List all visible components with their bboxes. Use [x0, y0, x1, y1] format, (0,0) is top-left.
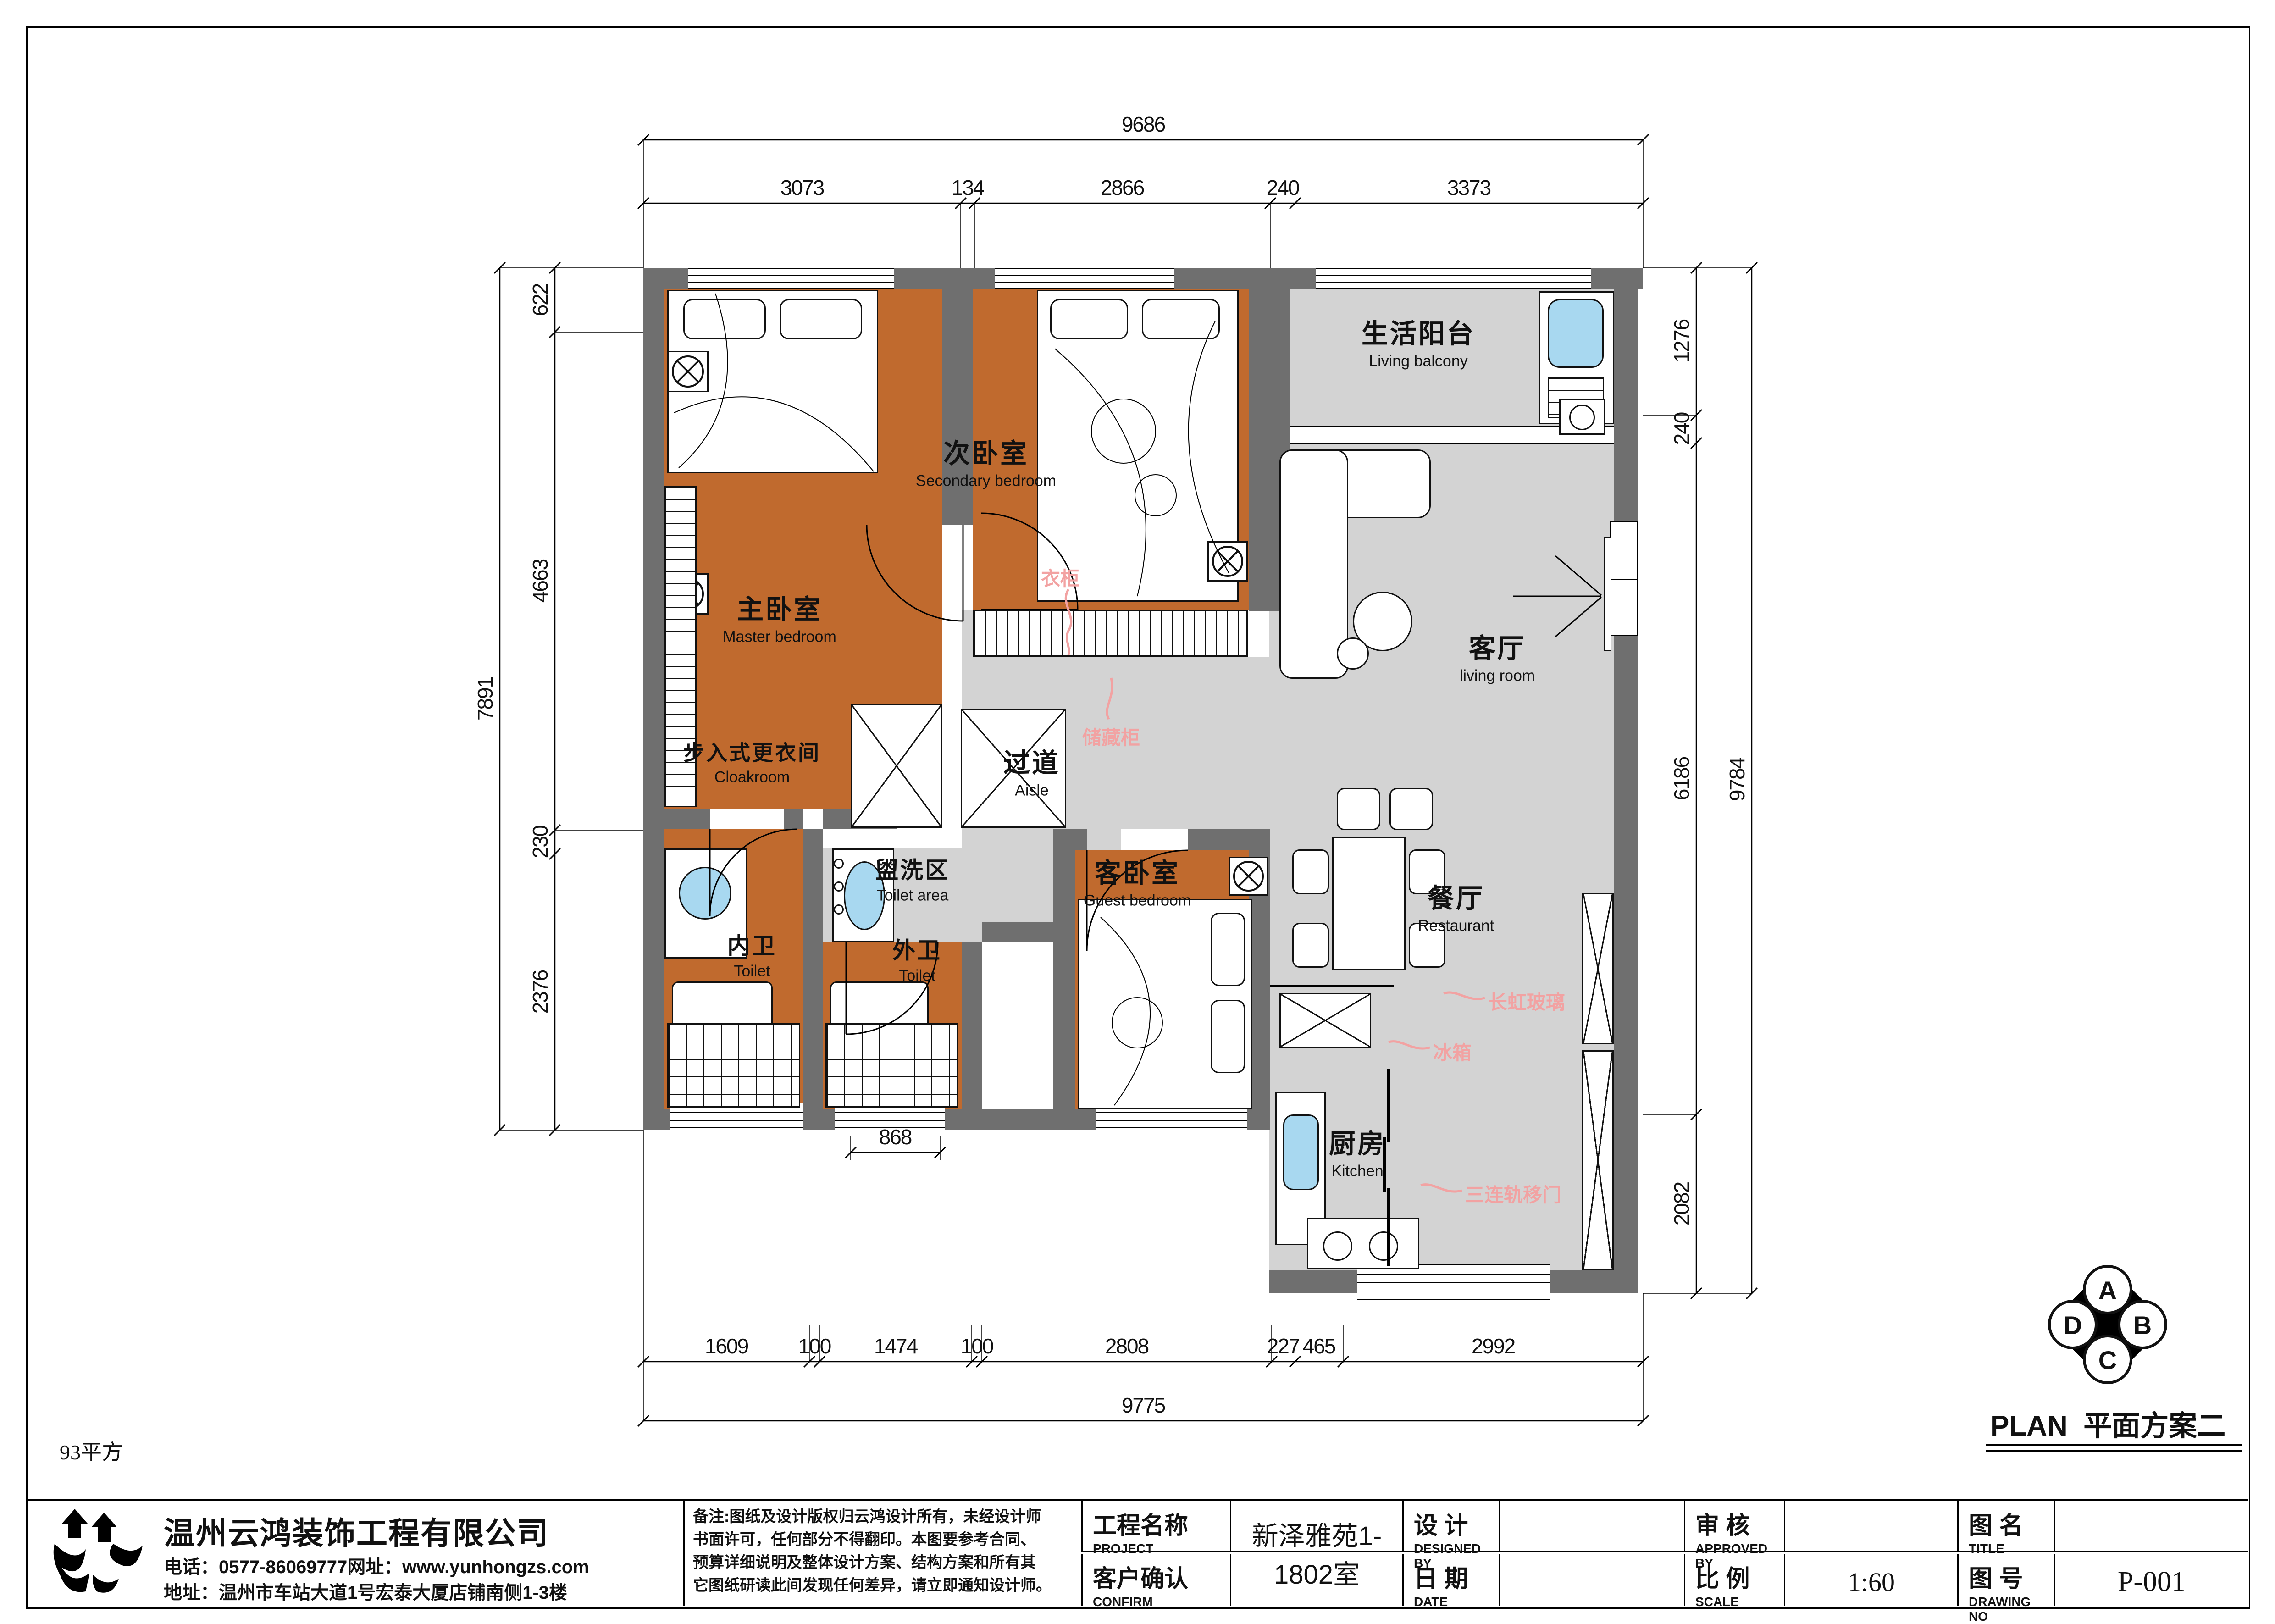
wall-guest-top — [1188, 829, 1269, 850]
dim-bottom-2: 1474 — [874, 1334, 917, 1358]
scale-label-cell: 比 例SCALE — [1684, 1554, 1784, 1606]
wall-left — [643, 268, 664, 1130]
dim-bottom-1: 100 — [798, 1334, 831, 1358]
window-kitchen-bottom — [1357, 1264, 1550, 1300]
label-aisle: 过道Aisle — [1003, 742, 1060, 800]
window-secondary-top — [995, 268, 1174, 289]
notes-cell: 备注:图纸及设计版权归云鸿设计所有，未经设计师 书面许可，任何部分不得翻印。本图… — [683, 1501, 1081, 1606]
master-pillow-1 — [683, 299, 766, 339]
dim-window: 868 — [879, 1125, 912, 1149]
confirm-label-cell: 客户确认CONFIRM — [1081, 1554, 1230, 1606]
label-outer-toilet: 外卫Toilet — [892, 932, 942, 985]
annotation-wardrobe: 衣柜 — [1041, 563, 1079, 591]
designed-value-cell — [1499, 1501, 1684, 1552]
company-cell: 温州云鸿装饰工程有限公司 电话：0577-86069777网址：www.yunh… — [26, 1501, 683, 1606]
approved-label-cn: 审 核 — [1695, 1506, 1784, 1541]
side-table — [1337, 637, 1369, 670]
compass-circle-d: D — [2048, 1300, 2098, 1349]
company-address: 地址：温州市车站大道1号宏泰大厦店铺南侧1-3楼 — [164, 1578, 567, 1604]
drawing-label-cell: 图 号DRAWING NO — [1957, 1554, 2054, 1606]
wall-aisle-south — [982, 922, 1053, 942]
plan-title: PLAN 平面方案二 — [1990, 1402, 2242, 1444]
title-value-cell — [2054, 1501, 2248, 1552]
kitchen-sink — [1283, 1114, 1319, 1190]
storage-cabinet-1 — [851, 704, 942, 828]
dim-top-3: 240 — [1267, 175, 1299, 200]
date-value-cell — [1499, 1554, 1684, 1606]
drawing-label-cn: 图 号 — [1969, 1559, 2054, 1594]
toilet-area-knob-1 — [834, 859, 844, 869]
project-label-cell: 工程名称PROJECT — [1081, 1501, 1230, 1552]
dim-bottom-7: 2992 — [1472, 1334, 1515, 1358]
plan-title-underline-1 — [1986, 1444, 2242, 1446]
confirm-value-cell — [1230, 1554, 1402, 1606]
wall-master-bottom-a — [664, 809, 710, 829]
dim-bottom-0: 1609 — [705, 1334, 748, 1358]
dim-top-1: 134 — [952, 175, 984, 200]
wall-outer-toilet-right — [962, 942, 982, 1109]
sliding-door-leaf-1 — [1387, 1069, 1390, 1142]
dim-bottom-4: 2808 — [1105, 1334, 1148, 1358]
scale-label-cn: 比 例 — [1695, 1559, 1784, 1594]
confirm-label-en: CONFIRM — [1093, 1595, 1230, 1609]
scale-label-en: SCALE — [1695, 1595, 1784, 1609]
kitchen-glass-partition — [1270, 985, 1394, 987]
compass-circle-c: C — [2083, 1335, 2132, 1384]
balcony-sink — [1548, 299, 1604, 368]
sliding-door-leaf-3 — [1387, 1188, 1390, 1266]
label-living: 客厅living room — [1460, 627, 1535, 685]
dim-left-2: 230 — [528, 826, 553, 859]
wall-master-bottom-b — [784, 809, 803, 829]
drawing-value: P-001 — [2055, 1566, 2248, 1598]
title-label-cell: 图 名TITLE — [1957, 1501, 2054, 1552]
dim-right-0: 1276 — [1669, 320, 1694, 363]
outer-toilet-shower-tiles — [825, 1023, 958, 1108]
label-guest: 客卧室Guest bedroom — [1084, 852, 1191, 910]
master-pillow-2 — [780, 299, 862, 339]
dim-left-3: 2376 — [528, 970, 553, 1014]
label-inner-toilet: 内卫Toilet — [727, 928, 777, 981]
company-phone: 电话：0577-86069777网址：www.yunhongzs.com — [164, 1552, 589, 1579]
dim-top-0: 3073 — [780, 175, 824, 200]
wall-guest-left — [1053, 829, 1075, 1109]
window-master-top — [688, 268, 894, 289]
annotation-glass: 长虹玻璃 — [1488, 987, 1565, 1015]
annotation-sliding-door: 三连轨移门 — [1465, 1180, 1561, 1208]
notes-line-3: 预算详细说明及整体设计方案、结构方案和所有其 — [693, 1551, 1052, 1574]
secondary-pillow-2 — [1142, 299, 1220, 339]
drawing-label-en: DRAWING NO — [1969, 1595, 2054, 1624]
inner-toilet-shower-tiles — [667, 1023, 800, 1108]
confirm-label-cn: 客户确认 — [1093, 1559, 1230, 1594]
sofa-body — [1279, 449, 1348, 679]
fridge — [1279, 993, 1371, 1048]
dim-left-outer: 7891 — [473, 677, 498, 721]
plan-title-cn: 平面方案二 — [2083, 1410, 2225, 1442]
label-cloakroom: 步入式更衣间Cloakroom — [683, 737, 821, 787]
dim-right-2: 6186 — [1669, 757, 1694, 800]
guest-pillow-2 — [1211, 1000, 1245, 1073]
dim-bottom-total: 9775 — [1122, 1393, 1165, 1418]
designed-label-cell: 设 计DESIGNED BY — [1402, 1501, 1499, 1552]
wall-guest-top-stub — [1075, 829, 1087, 850]
project-value-cell: 新泽雅苑1-1802室 — [1230, 1501, 1402, 1552]
dim-bottom-6: 465 — [1303, 1334, 1335, 1358]
guest-nightstand — [1229, 857, 1268, 896]
company-logo — [49, 1507, 150, 1599]
notes-line-1: 备注:图纸及设计版权归云鸿设计所有，未经设计师 — [693, 1505, 1052, 1528]
guest-pillow-1 — [1211, 913, 1245, 986]
label-kitchen: 厨房Kitchen — [1329, 1122, 1386, 1181]
scale-value: 1:60 — [1785, 1567, 1957, 1597]
annotation-storage: 储藏柜 — [1082, 722, 1140, 750]
dim-top-total: 9686 — [1122, 112, 1165, 137]
tv-panel — [1604, 537, 1611, 651]
window-entry-right — [1610, 521, 1638, 636]
dim-right-3: 2082 — [1669, 1182, 1694, 1225]
dim-right-1: 240 — [1669, 413, 1694, 445]
dim-bottom-5: 227 — [1267, 1334, 1300, 1358]
secondary-nightstand — [1207, 541, 1248, 582]
dim-right-outer: 9784 — [1725, 758, 1749, 801]
designed-label-cn: 设 计 — [1414, 1506, 1499, 1541]
approved-value-cell — [1784, 1501, 1957, 1552]
notes-line-2: 书面许可，任何部分不得翻印。本图要参考合同、 — [693, 1528, 1052, 1551]
dim-left-0: 622 — [528, 284, 553, 316]
wall-right — [1614, 268, 1638, 1293]
balcony-gas-circle — [1569, 405, 1595, 430]
project-label-cn: 工程名称 — [1093, 1506, 1230, 1541]
label-secondary: 次卧室Secondary bedroom — [916, 432, 1056, 490]
dining-chair-4 — [1292, 923, 1329, 968]
burner-1 — [1323, 1231, 1352, 1261]
dining-chair-3 — [1292, 849, 1329, 894]
hallway-cabinet-upper — [1582, 893, 1614, 1044]
burner-2 — [1369, 1231, 1398, 1261]
wall-toilet-divider — [803, 829, 823, 1109]
master-nightstand-1 — [667, 351, 709, 392]
approved-label-cell: 审 核APPROVED BY — [1684, 1501, 1784, 1552]
notes-line-4: 它图纸研读此间发现任何差异，请立即通知设计师。 — [693, 1574, 1052, 1597]
dim-bottom-3: 100 — [961, 1334, 993, 1358]
plan-title-en: PLAN — [1990, 1410, 2068, 1442]
label-restaurant: 餐厅Restaurant — [1418, 877, 1494, 935]
dining-chair-1 — [1337, 788, 1380, 830]
label-balcony: 生活阳台Living balcony — [1362, 312, 1475, 371]
dim-top-2: 2866 — [1101, 175, 1144, 200]
window-balcony-top — [1316, 268, 1591, 289]
dining-chair-2 — [1389, 788, 1433, 830]
inner-toilet-sink — [679, 867, 731, 920]
area-note: 93平方 — [60, 1436, 123, 1466]
title-label-cn: 图 名 — [1969, 1506, 2054, 1541]
drawing-value-cell: P-001 — [2054, 1554, 2248, 1606]
compass: A B C D — [2048, 1265, 2167, 1384]
plan-title-underline-2 — [1986, 1450, 2242, 1452]
dim-top-4: 3373 — [1447, 175, 1490, 200]
dim-left-1: 4663 — [528, 560, 553, 603]
toilet-area-knob-3 — [834, 904, 844, 915]
label-toilet-area: 盥洗区Toilet area — [875, 852, 950, 905]
date-label-cn: 日 期 — [1414, 1559, 1499, 1594]
window-inner-toilet — [670, 1103, 803, 1136]
scale-value-cell: 1:60 — [1784, 1554, 1957, 1606]
toilet-area-knob-2 — [834, 881, 844, 892]
secondary-pillow-1 — [1050, 299, 1128, 339]
label-master: 主卧室Master bedroom — [723, 588, 836, 646]
hallway-cabinet-lower — [1582, 1050, 1614, 1270]
date-label-en: DATE — [1414, 1595, 1499, 1609]
drawing-sheet: 生活阳台Living balcony 次卧室Secondary bedroom … — [0, 0, 2275, 1609]
company-name: 温州云鸿装饰工程有限公司 — [164, 1508, 549, 1553]
annotation-fridge: 冰箱 — [1433, 1037, 1472, 1065]
date-label-cell: 日 期DATE — [1402, 1554, 1499, 1606]
dining-table — [1332, 837, 1406, 970]
secondary-wardrobe — [973, 610, 1248, 657]
